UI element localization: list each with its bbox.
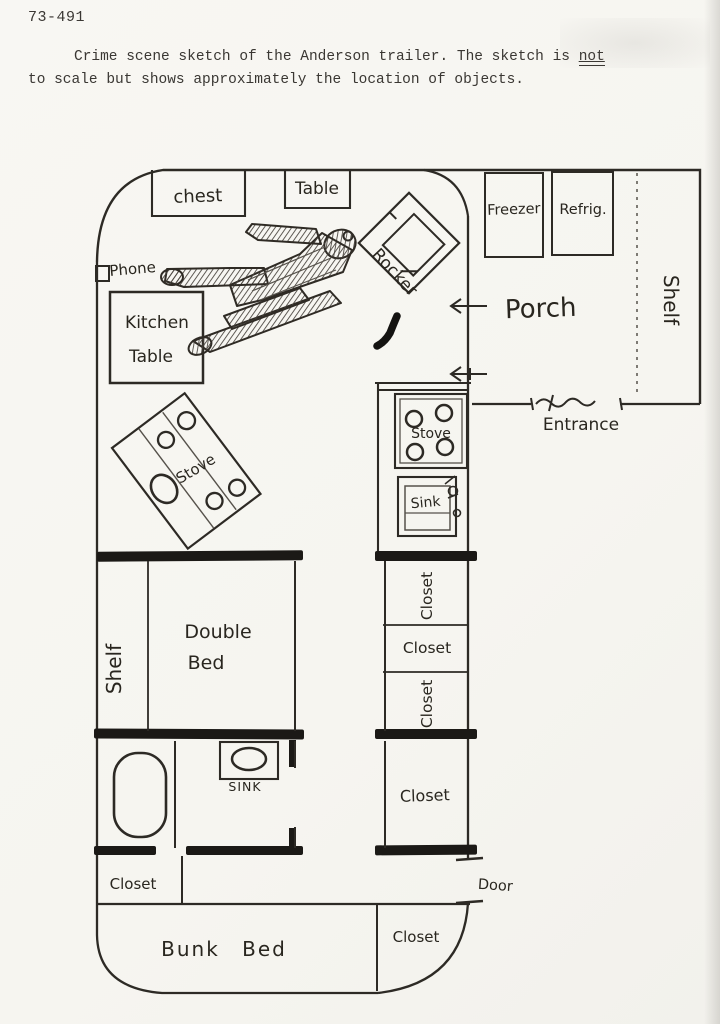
porch-shelf-label: Shelf xyxy=(659,275,683,326)
bathroom-sink-label: SINK xyxy=(228,779,261,794)
entrance-label: Entrance xyxy=(543,415,619,435)
faucet-doodle xyxy=(445,476,461,517)
kitchen-table-box xyxy=(110,292,203,383)
double-bed-label-line1: Double xyxy=(184,621,251,643)
bedroom-shelf-label: Shelf xyxy=(102,643,126,694)
rocker-label: Rocker xyxy=(367,245,421,301)
floor-plan-sketch: chest Table Rocker Phone Kitchen Table F… xyxy=(0,0,720,1024)
freezer-label: Freezer xyxy=(487,201,541,219)
closet-bottom-label: Closet xyxy=(393,928,440,946)
refrigerator-label: Refrig. xyxy=(559,202,606,218)
table-label: Table xyxy=(294,179,339,199)
bunk-bed-label: Bunk Bed xyxy=(161,937,287,961)
bathroom-sink-basin xyxy=(232,748,266,770)
double-bed-label-line2: Bed xyxy=(188,652,225,674)
counter-unit xyxy=(375,383,471,553)
closet-large-label: Closet xyxy=(400,785,450,806)
kitchen-table-label-line1: Kitchen xyxy=(125,313,189,333)
sink-counter-label: Sink xyxy=(410,494,442,513)
bathtub xyxy=(114,753,166,837)
closet-hall-label: Closet xyxy=(110,875,157,893)
bedroom xyxy=(148,561,295,731)
closet-lower-label: Closet xyxy=(418,680,436,728)
closet-middle-label: Closet xyxy=(403,639,451,657)
break-squiggle xyxy=(536,399,595,407)
scanned-document-page: 73-491 Crime scene sketch of the Anderso… xyxy=(0,0,720,1024)
chest-label: chest xyxy=(173,185,223,208)
porch-door-arrow-lower xyxy=(451,367,487,381)
stove-counter-label: Stove xyxy=(411,426,451,442)
porch-label: Porch xyxy=(504,293,577,325)
dark-object-mark xyxy=(377,316,397,346)
trailer-outline xyxy=(97,170,700,993)
kitchen-table-label-line2: Table xyxy=(128,347,173,367)
phone-label: Phone xyxy=(109,258,157,280)
door-label: Door xyxy=(477,877,513,895)
closet-top-label: Closet xyxy=(418,572,436,620)
bathroom xyxy=(114,741,295,848)
